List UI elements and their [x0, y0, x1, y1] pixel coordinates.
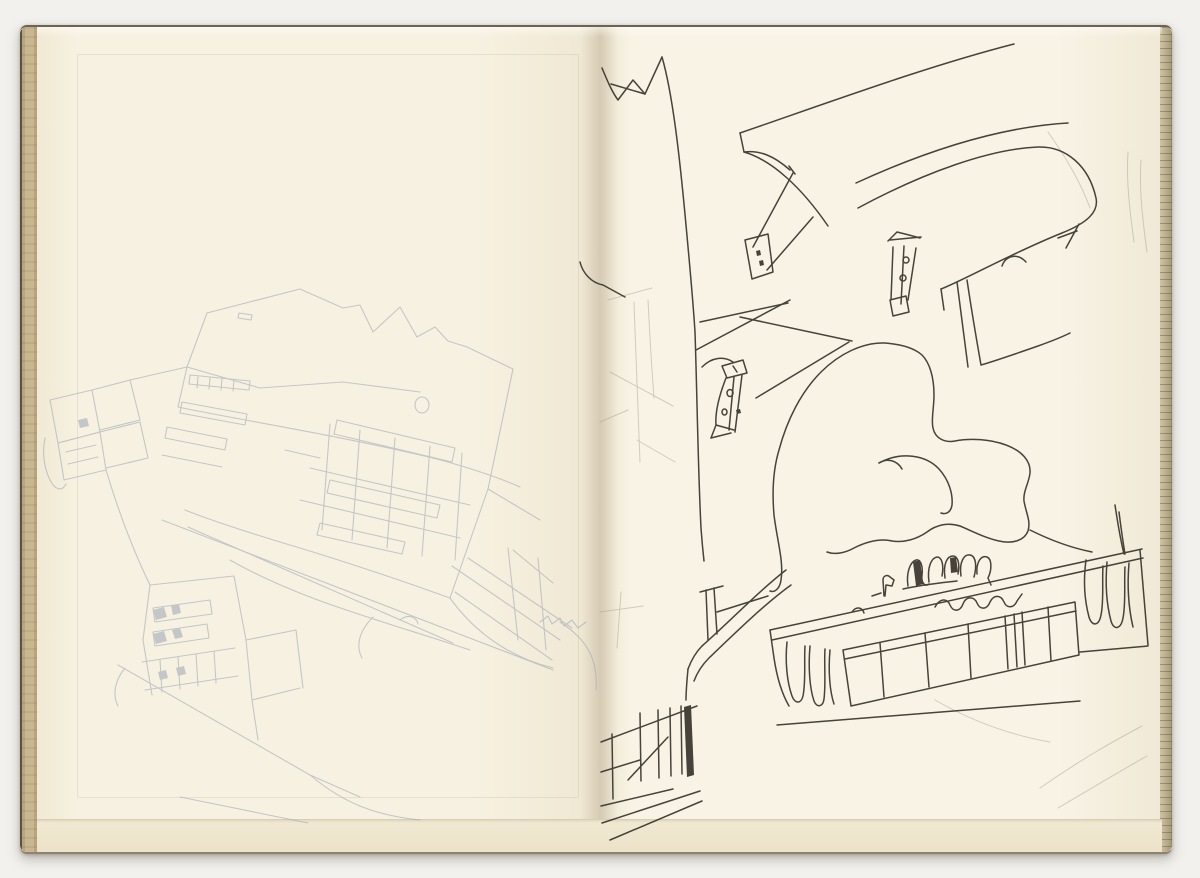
- scan-background: [0, 0, 1200, 878]
- bottom-page-stack: [37, 819, 1162, 852]
- page-gutter: [580, 27, 618, 852]
- fore-edge: [1160, 27, 1172, 852]
- left-page: [37, 27, 598, 852]
- spine-binding-edge: [20, 27, 37, 852]
- right-page: [598, 27, 1160, 852]
- page-top-sheen: [37, 27, 1162, 37]
- plate-impression: [77, 54, 579, 798]
- sketchbook: [20, 25, 1172, 854]
